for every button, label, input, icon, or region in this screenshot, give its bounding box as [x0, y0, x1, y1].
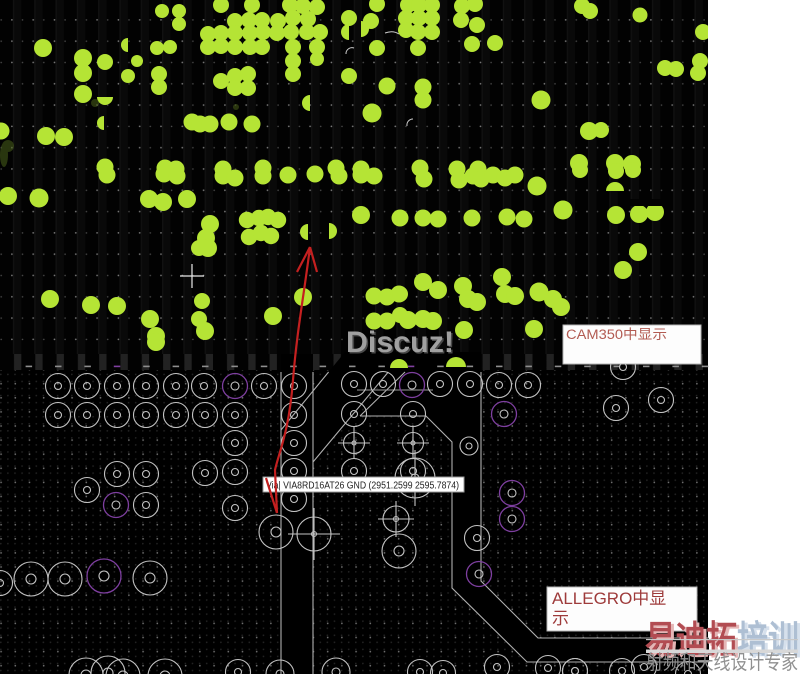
svg-text:示: 示: [552, 609, 569, 628]
svg-text:射频和天线设计专家: 射频和天线设计专家: [646, 651, 798, 674]
svg-text:ALLEGRO中显: ALLEGRO中显: [552, 589, 666, 608]
svg-text:Discuz!: Discuz!: [346, 326, 454, 359]
svg-text:CAM350中显示: CAM350中显示: [566, 327, 667, 342]
svg-text:Via| VIA8RD16AT26 GND (2951.: Via| VIA8RD16AT26 GND (2951.2599 2595.78…: [266, 481, 459, 492]
